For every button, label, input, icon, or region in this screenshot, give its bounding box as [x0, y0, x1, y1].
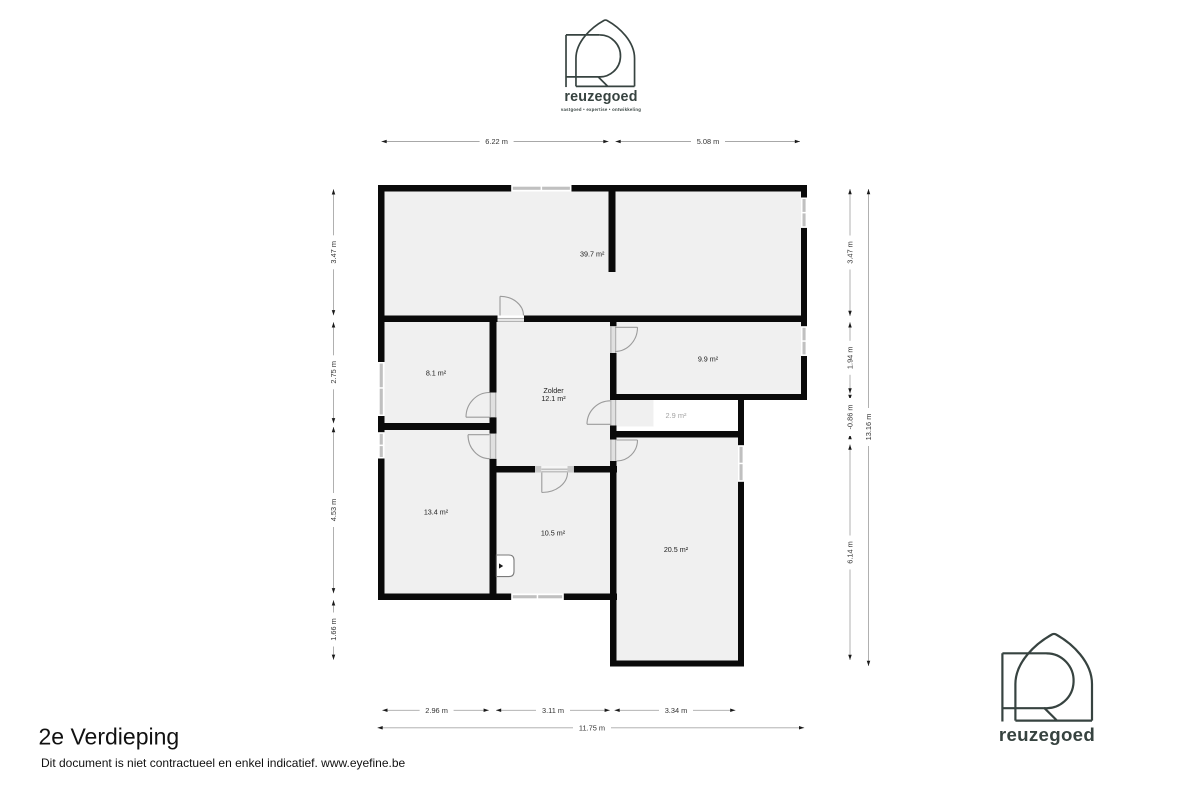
- svg-text:20.5 m²: 20.5 m²: [664, 545, 689, 554]
- svg-text:1.66 m: 1.66 m: [329, 618, 338, 641]
- svg-text:8.1 m²: 8.1 m²: [426, 369, 447, 378]
- svg-text:12.1 m²: 12.1 m²: [541, 394, 566, 403]
- svg-text:1.94 m: 1.94 m: [846, 346, 855, 369]
- svg-text:2.75 m: 2.75 m: [329, 361, 338, 384]
- svg-text:2.9 m²: 2.9 m²: [666, 411, 687, 420]
- svg-text:13.4 m²: 13.4 m²: [424, 508, 449, 517]
- svg-text:9.9 m²: 9.9 m²: [698, 355, 719, 364]
- svg-text:3.47 m: 3.47 m: [329, 241, 338, 264]
- svg-text:vastgoed • expertise • ontwikk: vastgoed • expertise • ontwikkeling: [561, 107, 641, 112]
- svg-text:39.7 m²: 39.7 m²: [580, 250, 605, 259]
- svg-text:2.96 m: 2.96 m: [425, 706, 448, 715]
- svg-text:6.22 m: 6.22 m: [485, 137, 508, 146]
- svg-text:13.16 m: 13.16 m: [864, 414, 873, 441]
- svg-text:Dit document is niet contractu: Dit document is niet contractueel en enk…: [41, 756, 406, 770]
- svg-text:reuzegoed: reuzegoed: [564, 89, 637, 105]
- svg-text:6.14 m: 6.14 m: [846, 541, 855, 564]
- svg-text:4.53 m: 4.53 m: [329, 499, 338, 522]
- svg-text:2e Verdieping: 2e Verdieping: [39, 724, 180, 750]
- svg-text:3.34 m: 3.34 m: [665, 706, 688, 715]
- svg-text:11.75 m: 11.75 m: [579, 724, 605, 733]
- svg-text:10.5 m²: 10.5 m²: [541, 529, 566, 538]
- svg-text:5.08 m: 5.08 m: [697, 137, 720, 146]
- svg-text:-0.86 m: -0.86 m: [846, 404, 855, 429]
- svg-text:reuzegoed: reuzegoed: [999, 724, 1095, 745]
- svg-text:3.11 m: 3.11 m: [542, 706, 564, 715]
- svg-text:3.47 m: 3.47 m: [846, 241, 855, 264]
